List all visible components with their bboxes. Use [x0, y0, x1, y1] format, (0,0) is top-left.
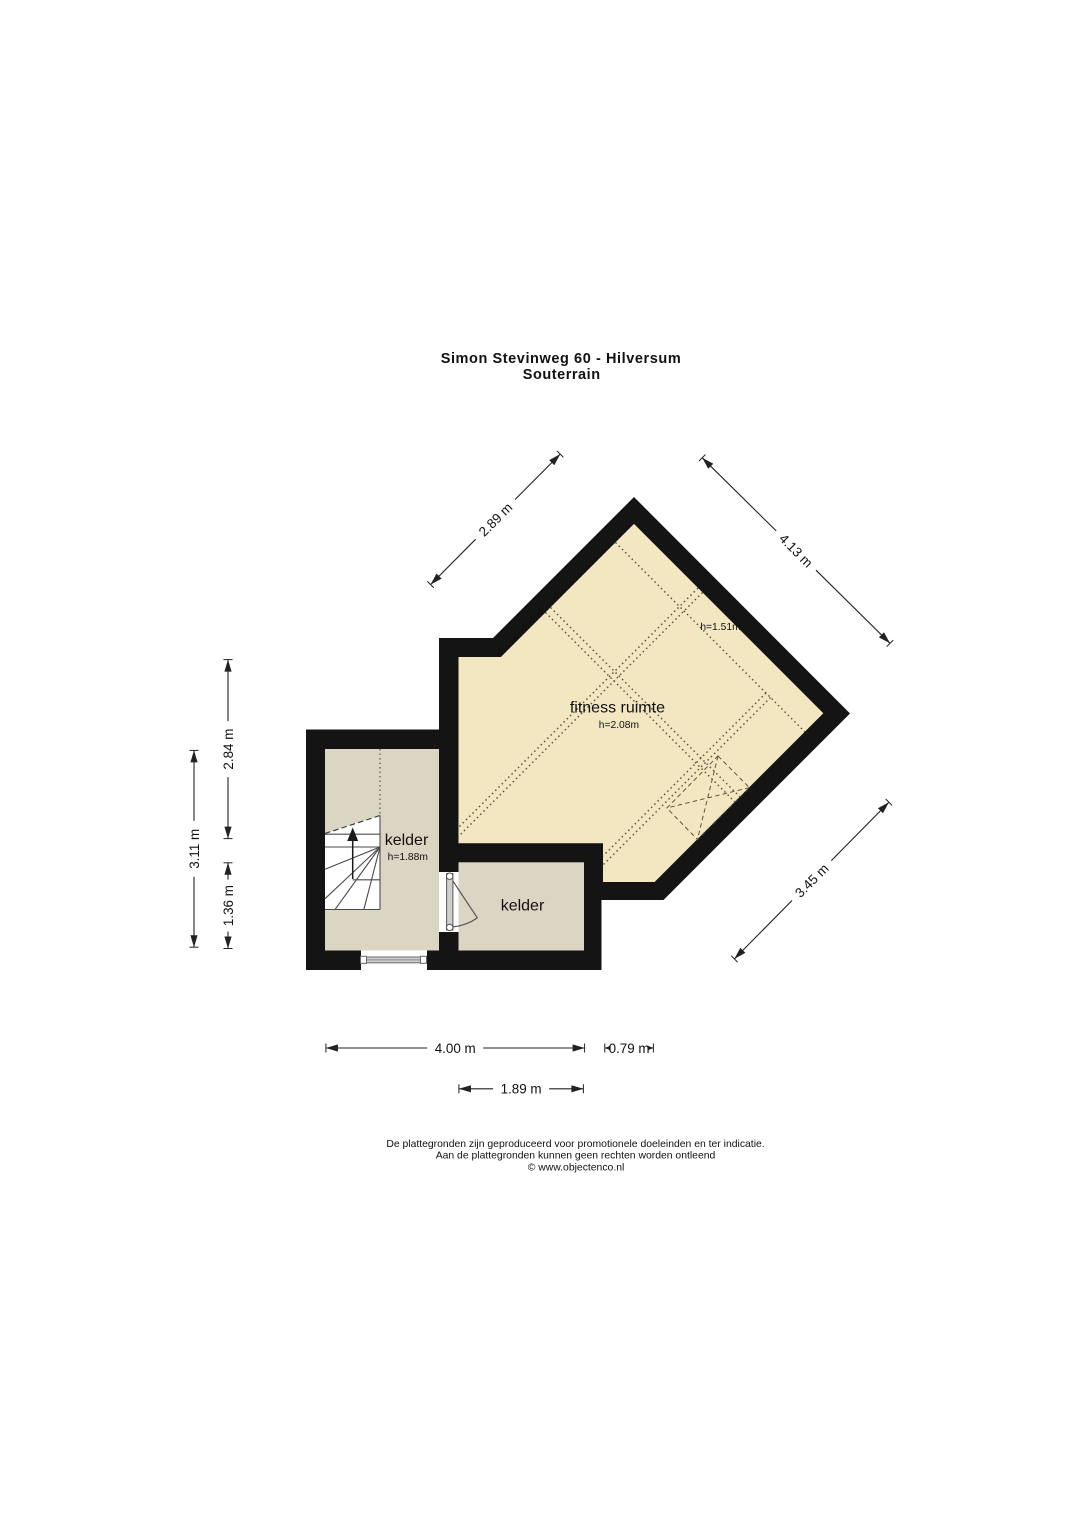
- svg-text:4.00 m: 4.00 m: [435, 1041, 476, 1056]
- svg-text:Aan de plattegronden kunnen ge: Aan de plattegronden kunnen geen rechten…: [436, 1151, 716, 1162]
- svg-text:1.89 m: 1.89 m: [501, 1082, 542, 1097]
- svg-text:h=2.08m: h=2.08m: [599, 720, 639, 731]
- svg-text:kelder: kelder: [501, 898, 545, 915]
- svg-text:© www.objectenco.nl: © www.objectenco.nl: [528, 1162, 625, 1173]
- svg-text:h=1.51m: h=1.51m: [700, 622, 740, 633]
- svg-text:1.36 m: 1.36 m: [221, 885, 236, 926]
- svg-text:0.79 m: 0.79 m: [609, 1041, 650, 1056]
- svg-text:kelder: kelder: [385, 832, 429, 849]
- svg-text:2.84 m: 2.84 m: [221, 729, 236, 770]
- svg-text:Souterrain: Souterrain: [523, 367, 601, 383]
- svg-text:Simon Stevinweg 60 - Hilversum: Simon Stevinweg 60 - Hilversum: [441, 351, 682, 367]
- svg-text:fitness ruimte: fitness ruimte: [570, 699, 665, 716]
- svg-text:3.11 m: 3.11 m: [187, 829, 202, 869]
- svg-text:De plattegronden zijn geproduc: De plattegronden zijn geproduceerd voor …: [386, 1139, 764, 1150]
- svg-text:h=1.88m: h=1.88m: [388, 852, 428, 863]
